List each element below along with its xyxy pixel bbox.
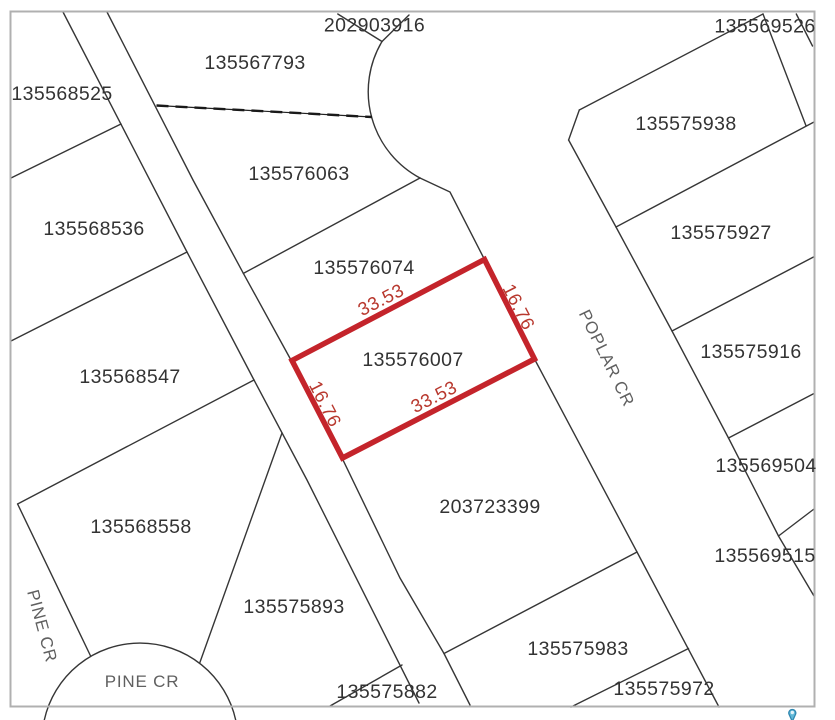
svg-text:135575927: 135575927 — [670, 222, 771, 244]
svg-text:135575972: 135575972 — [613, 678, 714, 700]
svg-text:202903916: 202903916 — [324, 15, 425, 37]
svg-text:135568536: 135568536 — [43, 218, 144, 240]
svg-text:PINE CR: PINE CR — [105, 672, 180, 691]
svg-text:135568558: 135568558 — [90, 516, 191, 538]
svg-text:135575983: 135575983 — [527, 638, 628, 660]
svg-text:135568525: 135568525 — [11, 83, 112, 105]
svg-text:135575916: 135575916 — [700, 341, 801, 363]
svg-text:135575893: 135575893 — [243, 596, 344, 618]
svg-text:135575938: 135575938 — [635, 113, 736, 135]
svg-text:135569504: 135569504 — [715, 455, 816, 477]
svg-text:135575882: 135575882 — [336, 681, 437, 703]
svg-text:203723399: 203723399 — [439, 496, 540, 518]
svg-text:135568547: 135568547 — [79, 366, 180, 388]
svg-text:135576063: 135576063 — [248, 163, 349, 185]
svg-text:135576007: 135576007 — [362, 349, 463, 371]
svg-text:135569526: 135569526 — [714, 16, 815, 38]
svg-text:135576074: 135576074 — [313, 257, 414, 279]
svg-text:135569515: 135569515 — [714, 545, 815, 567]
svg-text:135567793: 135567793 — [204, 52, 305, 74]
